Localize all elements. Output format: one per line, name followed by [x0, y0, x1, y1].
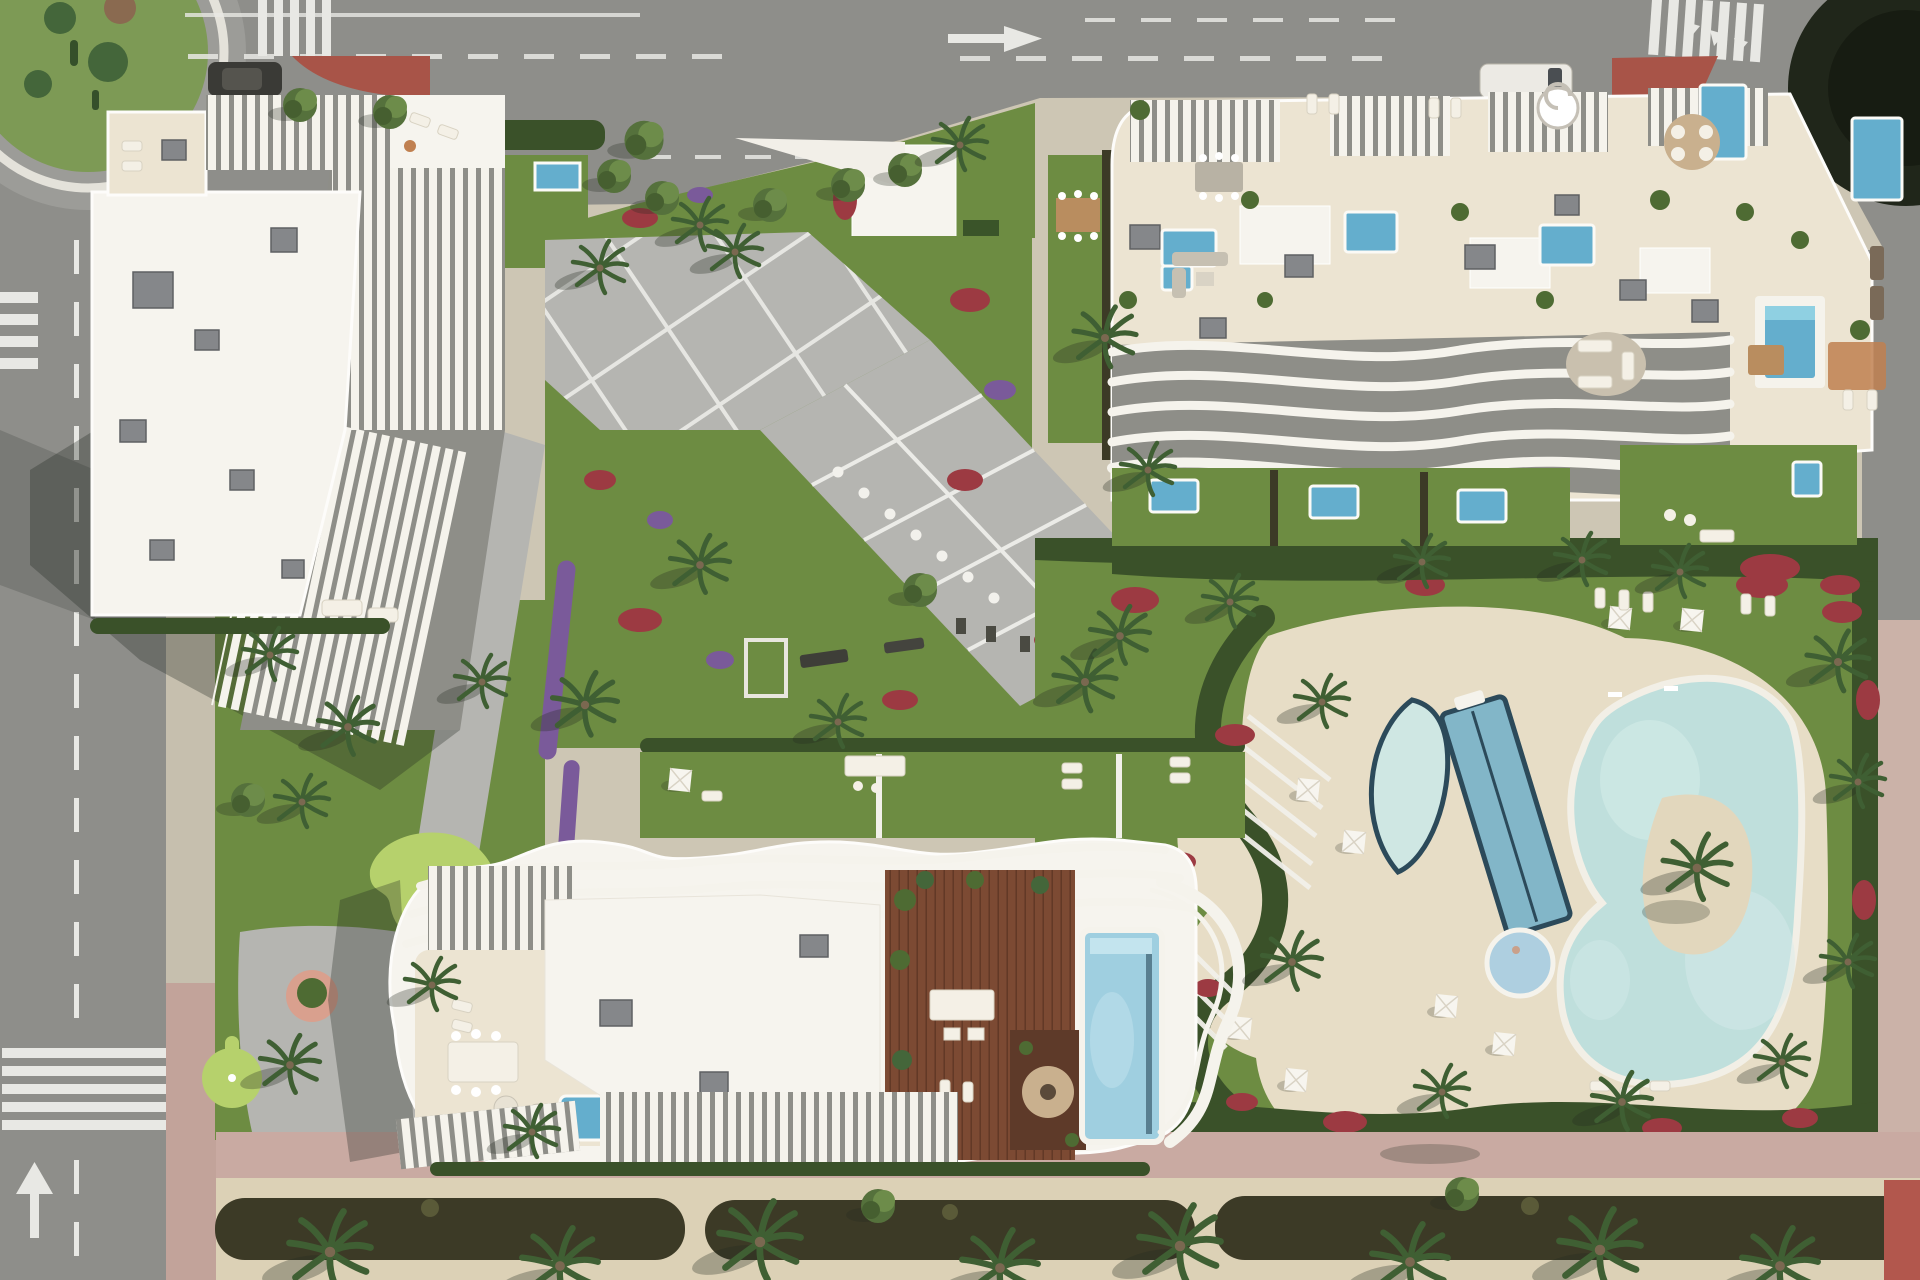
- building-c: [328, 839, 1239, 1176]
- aerial-render: [0, 0, 1920, 1280]
- private-garden-row: [640, 724, 1255, 838]
- fire-platform: [1010, 1030, 1086, 1150]
- parked-car: [208, 62, 282, 96]
- plunge-pool: [535, 163, 580, 190]
- rooftop-pool: [1082, 930, 1162, 1142]
- building-b: [1112, 84, 1902, 595]
- outdoor-dining-table: [1056, 198, 1100, 232]
- left-sidewalk-pink: [166, 983, 216, 1280]
- scene-svg: [0, 0, 1920, 1280]
- jacuzzi: [1487, 930, 1553, 996]
